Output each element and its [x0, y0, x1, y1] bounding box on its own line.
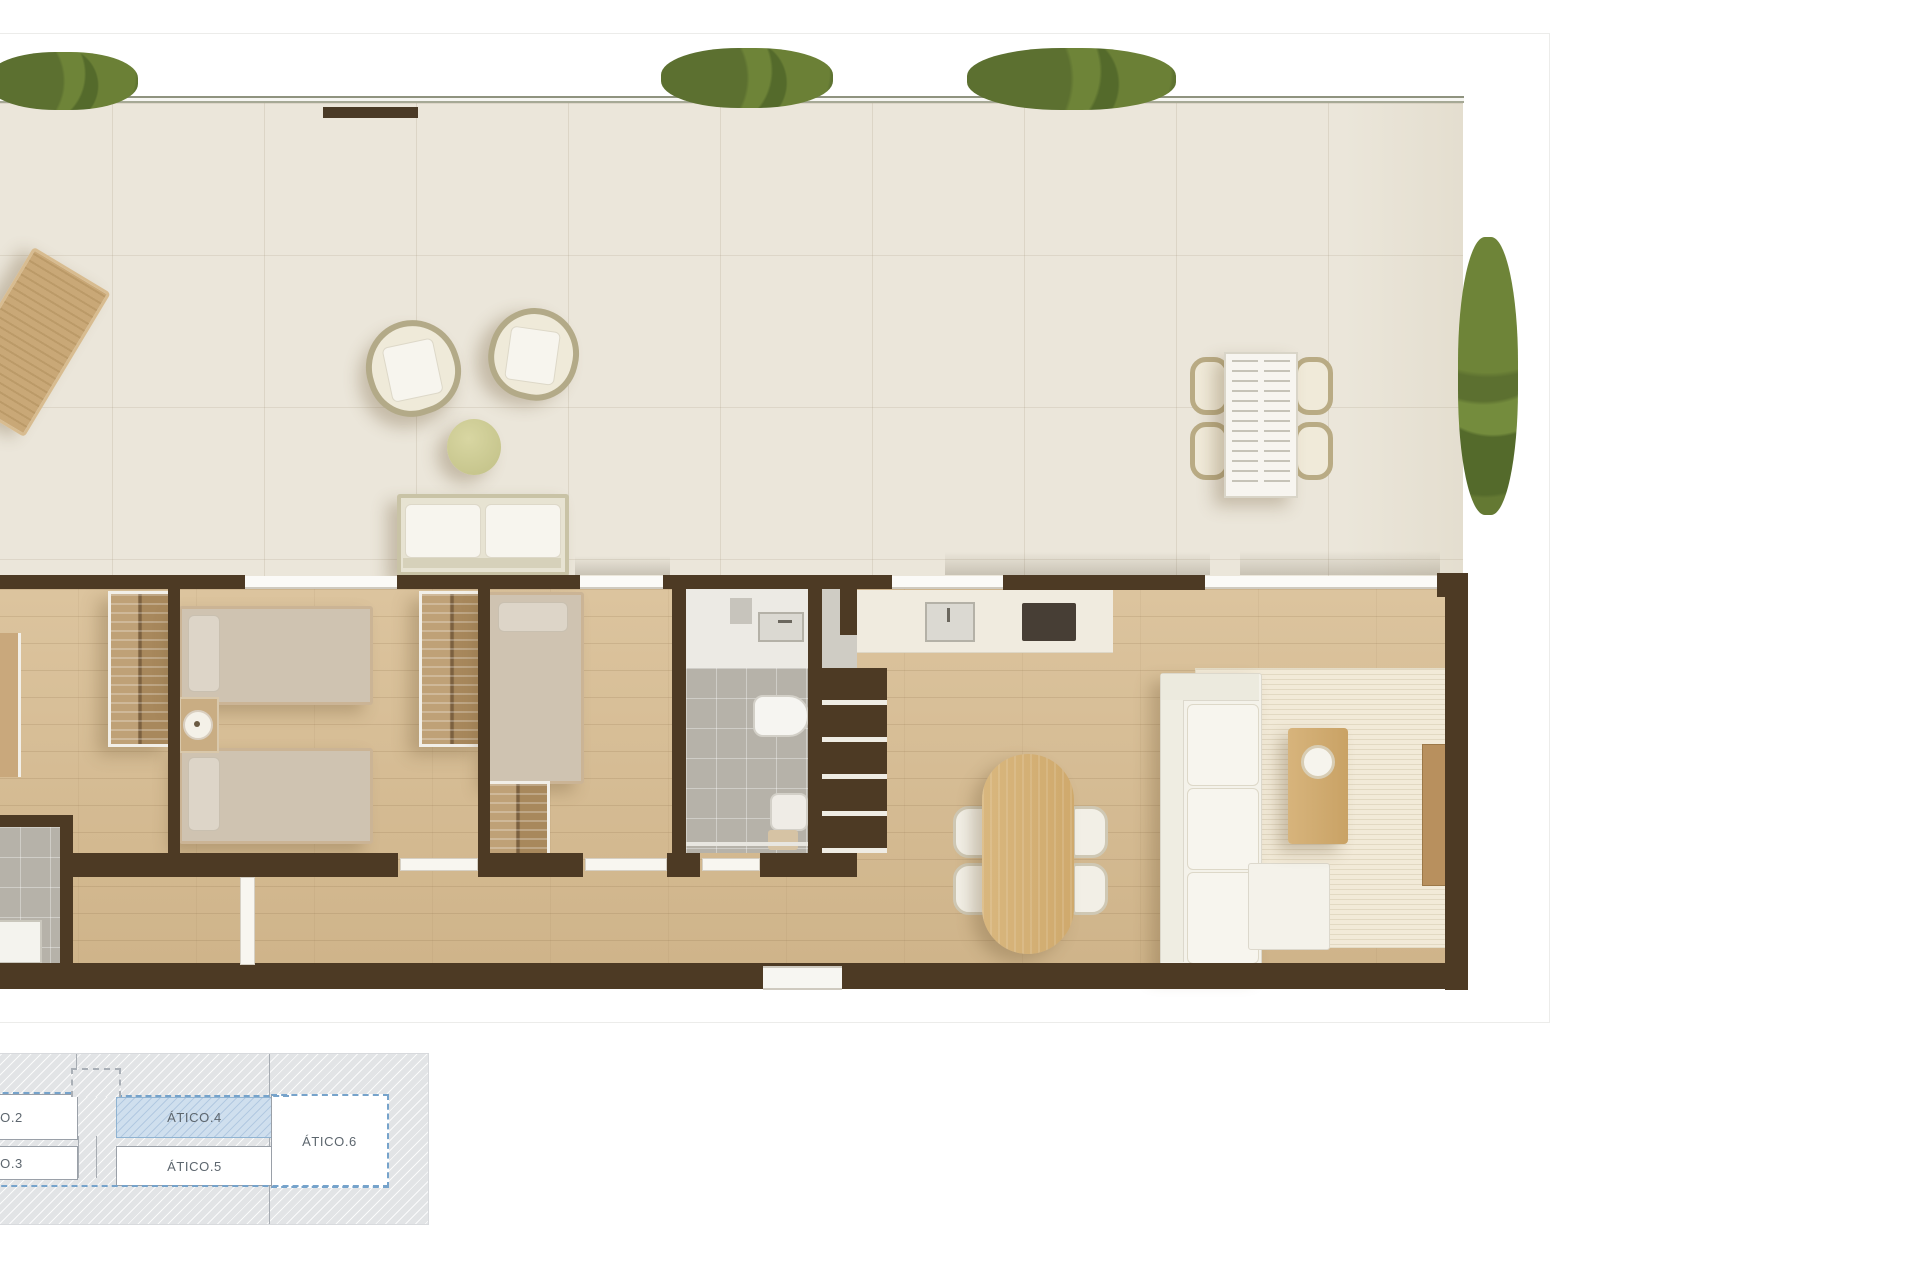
outdoor-sofa-back [403, 558, 561, 568]
wall-bedrooms-bottom [667, 853, 700, 877]
keyplan-unit-atico5[interactable]: ÁTICO.5 [116, 1146, 273, 1186]
terrace-side-table [447, 419, 501, 475]
screenshot-canvas: ÁTICO.2 ÁTICO.3 ÁTICO.4 ÁTICO.5 ÁTICO.6 [0, 0, 1920, 1280]
sofa-cushion [1187, 704, 1259, 786]
boundary-dashed-line [0, 1092, 71, 1094]
cooktop [1022, 603, 1076, 641]
unit-label: ÁTICO.5 [167, 1159, 222, 1174]
outdoor-chair [1293, 422, 1333, 480]
wall-bathroom-left [672, 589, 686, 853]
keyplan-unit-atico4-highlighted[interactable]: ÁTICO.4 [116, 1097, 273, 1138]
wall-shadow [1240, 551, 1440, 575]
armchair-cushion [381, 337, 444, 403]
nightstand-bedroom1 [179, 697, 219, 753]
bath-vanity [758, 612, 804, 642]
unit-label: ÁTICO.2 [0, 1110, 23, 1125]
boundary-dashed-line [116, 1095, 289, 1097]
dining-chair [1072, 806, 1108, 858]
keyplan-wall-line [269, 1054, 270, 1224]
table-slats [1264, 360, 1290, 490]
wardrobe-bedroom1-right [419, 591, 485, 747]
keyplan-wall-line [78, 1136, 79, 1178]
door-leaf-bathroom [702, 858, 760, 871]
door-leaf-bedroom2 [585, 858, 667, 871]
wall-vertical [168, 589, 180, 853]
terrace-floor [0, 103, 1463, 577]
bed-bedroom2 [487, 592, 584, 784]
wall-ensuite-top [0, 815, 73, 827]
outdoor-chair [1293, 357, 1333, 415]
wall-bottom [0, 963, 1468, 989]
unit-label: ÁTICO.4 [167, 1110, 222, 1125]
wall-right [1445, 575, 1468, 990]
coffee-table [1288, 728, 1348, 844]
keyplan-unit-atico2[interactable]: ÁTICO.2 [0, 1094, 78, 1140]
sofa-armrest [1161, 674, 1259, 701]
ensuite-shower-tray [0, 920, 42, 964]
hedge-top-left [0, 52, 138, 110]
unit-label: ÁTICO.6 [302, 1134, 357, 1149]
keyplan-unit-atico6[interactable]: ÁTICO.6 [271, 1094, 389, 1188]
outdoor-sofa-cushion [485, 504, 561, 558]
wall-shadow [945, 552, 1210, 575]
sliding-door-living [1205, 576, 1437, 589]
wall-bedrooms-bottom [73, 853, 398, 877]
sofa-back [1161, 700, 1184, 962]
sofa-chaise [1248, 863, 1330, 950]
bed-twin-1 [179, 606, 373, 705]
towel [768, 830, 798, 850]
window-kitchen [892, 576, 1003, 589]
decor-bowl [1301, 745, 1335, 779]
bath-shelf [730, 598, 752, 624]
table-slats [1232, 360, 1258, 490]
wall-bedrooms-bottom [478, 853, 583, 877]
kitchen-sink [925, 602, 975, 642]
door-leaf-bedroom1 [400, 858, 478, 871]
entrance-door [763, 966, 842, 990]
wardrobe-bedroom1-left [108, 591, 172, 747]
bed-pillow [188, 757, 220, 831]
wall-bedrooms-bottom [760, 853, 857, 877]
hedge-top-right [967, 48, 1176, 110]
door-leaf-hall [240, 877, 255, 965]
boundary-dashed-line [0, 1185, 389, 1187]
wall-top [1003, 575, 1205, 590]
dining-table [982, 754, 1074, 954]
shower-head [770, 793, 808, 831]
unit-label: ÁTICO.3 [0, 1156, 23, 1171]
wall-bathroom-right [808, 589, 822, 853]
outdoor-sofa-cushion [405, 504, 481, 558]
outdoor-dining-table [1224, 352, 1298, 498]
wall-ensuite-right [60, 827, 73, 963]
bed-pillow [498, 602, 568, 632]
wall-vertical [478, 583, 490, 853]
wall-top [663, 575, 892, 589]
wall-shadow [575, 556, 670, 575]
keyplan: ÁTICO.2 ÁTICO.3 ÁTICO.4 ÁTICO.5 ÁTICO.6 [0, 1053, 429, 1225]
wall-top [0, 575, 245, 589]
dining-chair [1072, 863, 1108, 915]
sofa-cushion [1187, 788, 1259, 870]
lamp-dot [194, 721, 200, 727]
keyplan-wall-line [96, 1136, 97, 1178]
toilet [753, 695, 809, 737]
window-bedroom2 [580, 576, 663, 589]
window-bedroom1 [245, 576, 397, 589]
wardrobe-edge [0, 633, 21, 777]
hall-shelving [822, 668, 887, 853]
outdoor-sofa [397, 494, 569, 576]
sofa [1160, 673, 1262, 972]
keyplan-notch [71, 1068, 121, 1097]
bed-pillow [188, 615, 220, 692]
bed-twin-2 [179, 748, 373, 844]
faucet [778, 620, 792, 623]
shower-glass [686, 842, 808, 846]
faucet [947, 608, 950, 622]
keyplan-unit-atico3[interactable]: ÁTICO.3 [0, 1146, 78, 1180]
armchair-cushion [504, 325, 561, 385]
planter-bar [323, 107, 418, 118]
hedge-top-middle [661, 48, 833, 108]
hedge-right-side [1458, 237, 1518, 515]
wall-kitchen-stub [840, 575, 857, 635]
